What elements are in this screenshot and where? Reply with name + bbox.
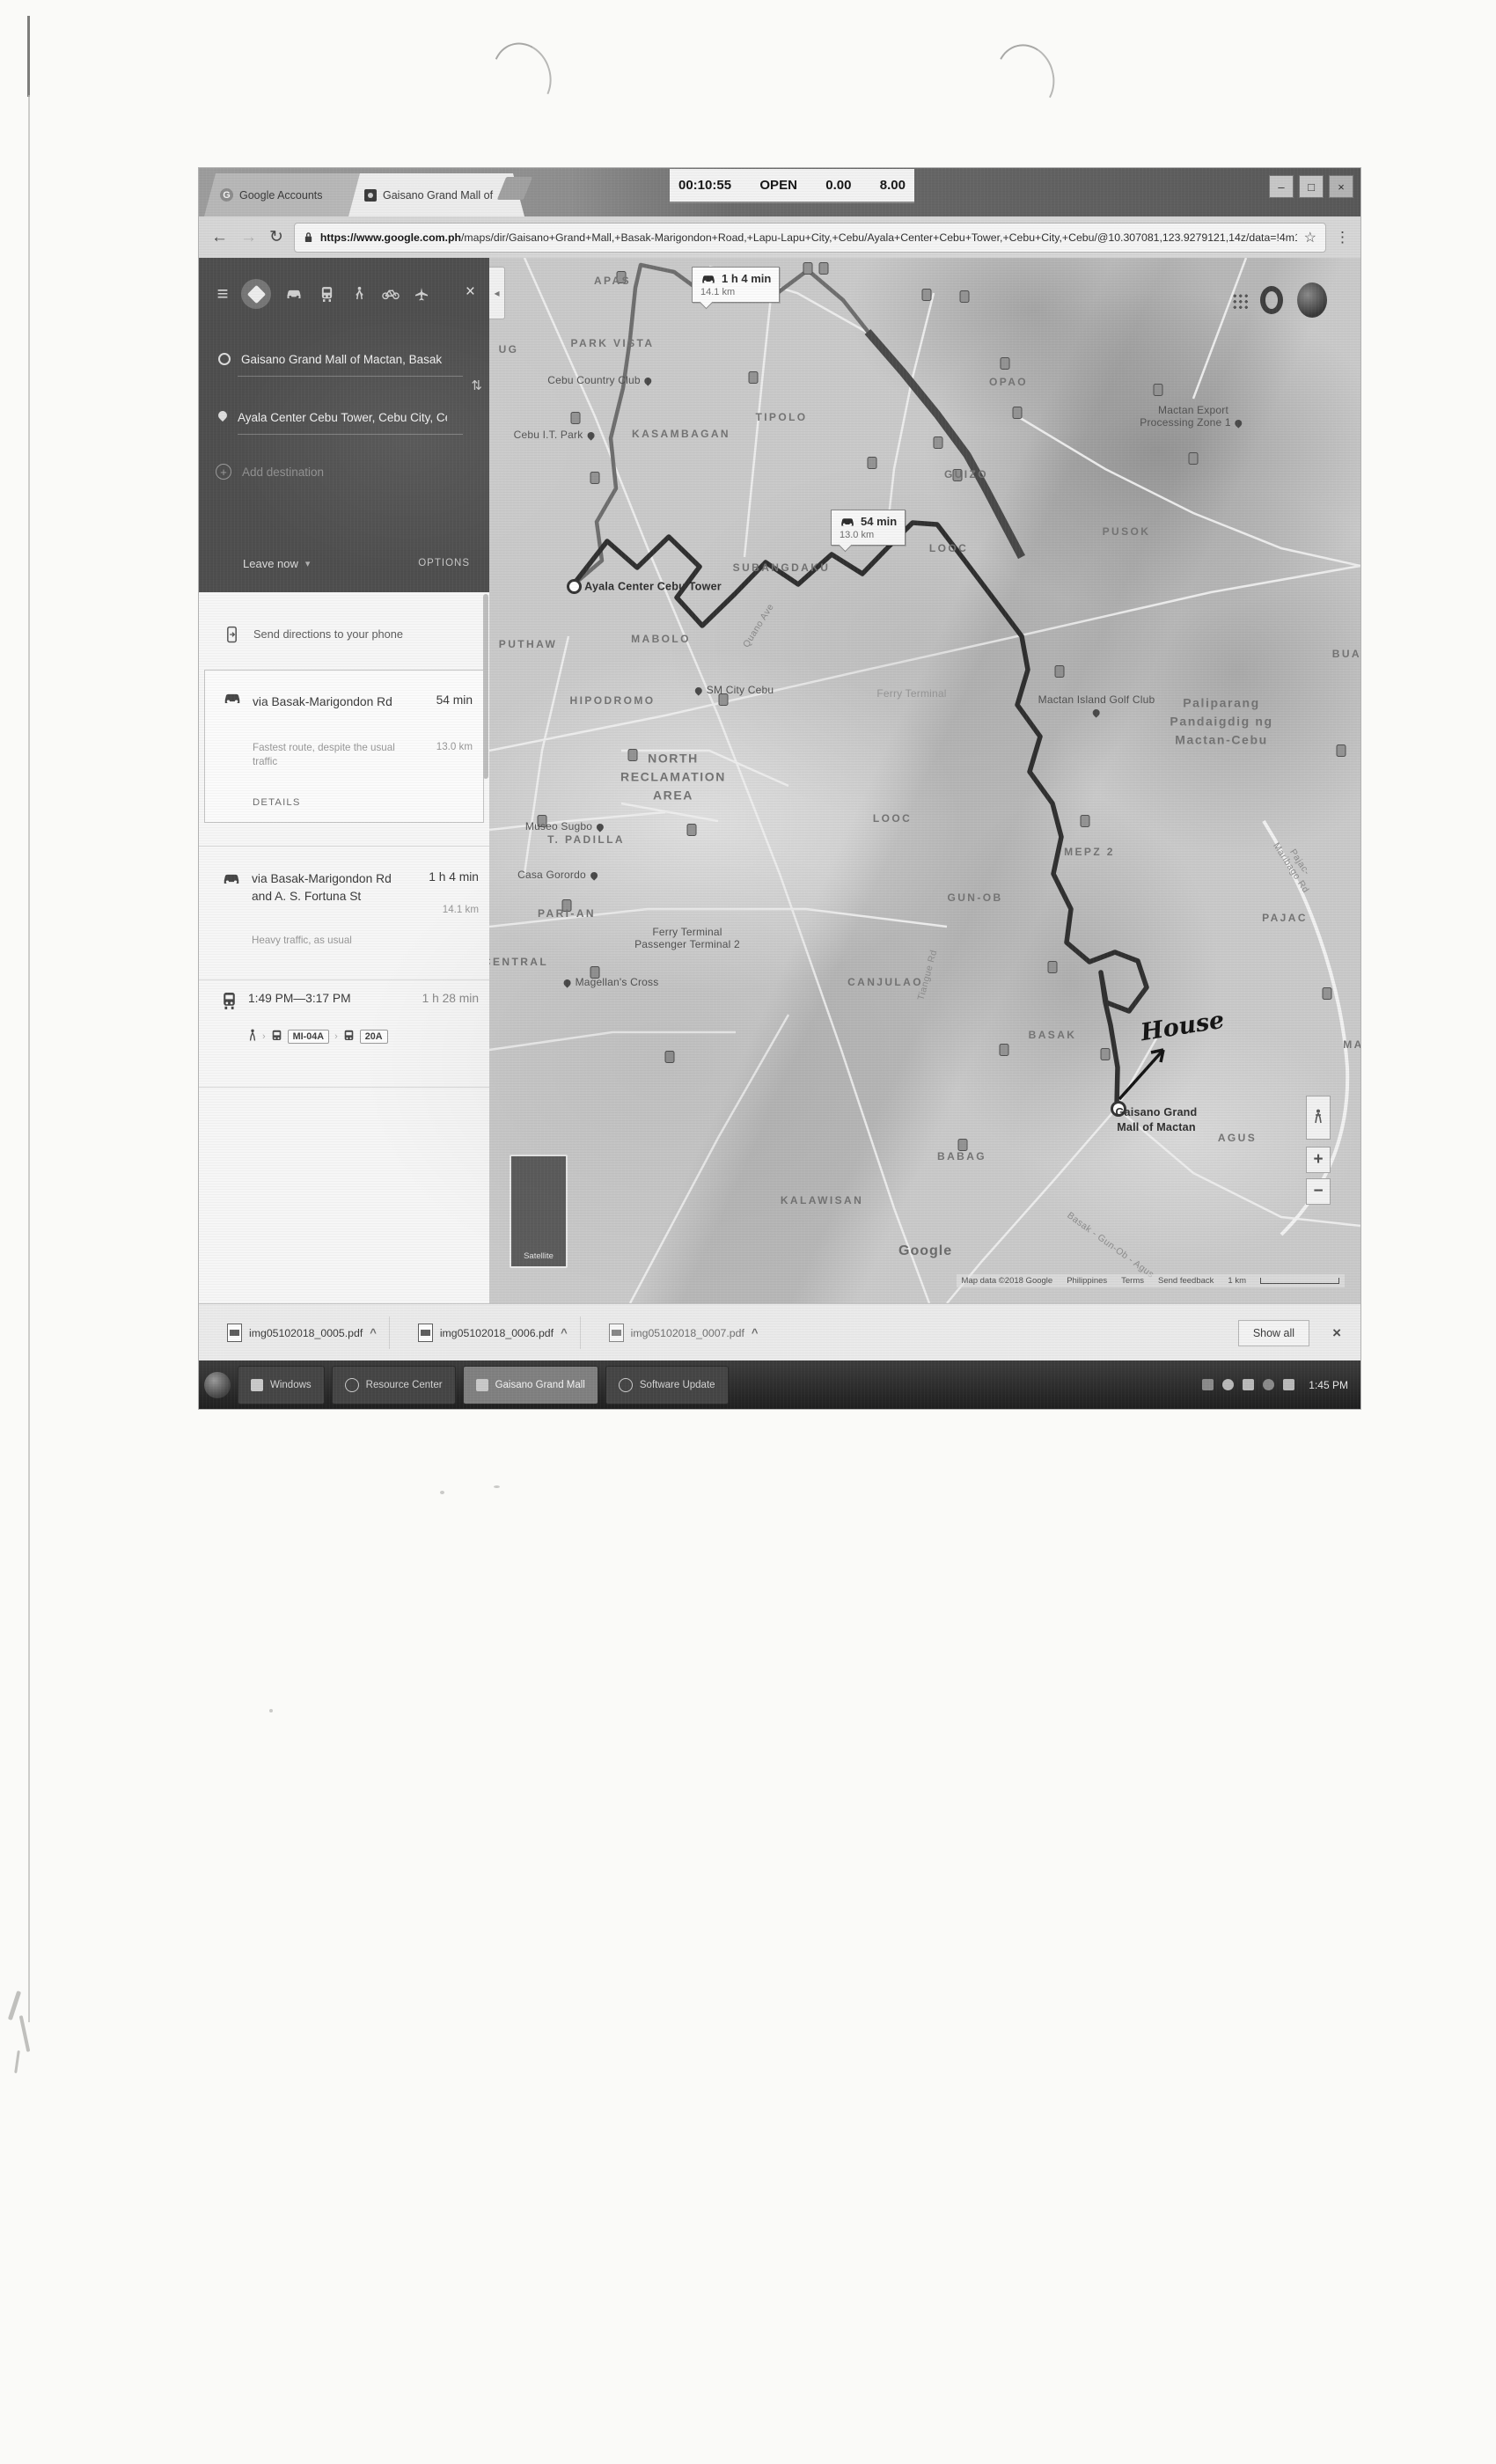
sidebar-scrollbar[interactable]: [483, 594, 488, 779]
car-icon: [700, 274, 716, 284]
scan-edge-line: [28, 95, 30, 2022]
close-window-button[interactable]: ×: [1329, 175, 1353, 198]
map-label: MABOLO: [631, 633, 691, 645]
software-update-icon: [619, 1378, 633, 1392]
url-input[interactable]: https://www.google.com.ph/maps/dir/Gaisa…: [294, 223, 1326, 253]
pen-arc-mark: [484, 35, 561, 119]
map-label: KALAWISAN: [781, 1194, 863, 1206]
maximize-button[interactable]: □: [1299, 175, 1324, 198]
route-via: via Basak-Marigondon Rd: [253, 693, 399, 711]
taskbar-item-label: Gaisano Grand Mall: [495, 1380, 585, 1390]
map-label: Ferry Terminal: [876, 687, 946, 700]
transit-stop-icon: [571, 412, 581, 424]
timer-status: OPEN: [759, 178, 797, 193]
car-icon: [223, 692, 242, 705]
bubble-duration: 54 min: [861, 515, 897, 528]
collapse-icon: ◂: [494, 287, 499, 299]
destination-value: Ayala Center Cebu Tower, Cebu City, Ce: [238, 411, 447, 424]
route-bubble-alternative[interactable]: 1 h 4 min 14.1 km: [692, 267, 780, 303]
transit-stop-icon: [803, 262, 813, 275]
region-label: Philippines: [1067, 1276, 1107, 1286]
feedback-link[interactable]: Send feedback: [1158, 1276, 1214, 1286]
map-label: Cebu I.T. Park: [514, 429, 599, 441]
transit-stop-icon: [868, 457, 877, 469]
add-destination-placeholder: Add destination: [242, 466, 451, 479]
terms-link[interactable]: Terms: [1121, 1276, 1144, 1286]
pegman-icon: [1313, 1108, 1324, 1127]
download-filename: img05102018_0007.pdf: [631, 1327, 744, 1339]
transit-stop-icon: [1055, 665, 1065, 678]
map-label: PAJAC: [1262, 912, 1308, 924]
map-label: T. PADILLA: [547, 833, 625, 846]
map-label: PARK VISTA: [571, 337, 655, 349]
download-filename: img05102018_0006.pdf: [440, 1327, 554, 1339]
show-all-downloads-button[interactable]: Show all: [1238, 1320, 1309, 1346]
map-label: LOOC: [929, 542, 968, 554]
system-tray: 1:45 PM: [1202, 1379, 1348, 1391]
cafe-timer-overlay: 00:10:55 OPEN 0.00 8.00: [670, 169, 914, 203]
caret-up-icon[interactable]: ^: [370, 1326, 377, 1339]
destination-field[interactable]: Ayala Center Cebu Tower, Cebu City, Ce: [199, 402, 489, 432]
scan-speck: [269, 1709, 273, 1712]
map-pin-icon: [595, 822, 605, 832]
transit-stop-icon: [1081, 815, 1090, 827]
mode-cycling[interactable]: [379, 282, 402, 305]
map-label: CENTRAL: [489, 956, 548, 968]
download-filename: img05102018_0005.pdf: [249, 1327, 363, 1339]
maps-favicon-icon: [364, 189, 377, 202]
bike-icon: [382, 288, 400, 300]
car-icon: [285, 288, 303, 300]
route-option-1[interactable]: via Basak-Marigondon Rd 54 min Fastest r…: [204, 670, 484, 823]
lock-icon: [304, 231, 313, 244]
map-label: PARI-AN: [538, 907, 596, 920]
pegman-streetview-control[interactable]: [1306, 1096, 1331, 1140]
route-distance: 14.1 km: [443, 904, 479, 915]
map-label: HIPODROMO: [570, 694, 656, 707]
transit-stop-icon: [687, 824, 697, 836]
map-label: AGUS: [1218, 1132, 1257, 1144]
browser-icon: [476, 1379, 488, 1391]
destination-marker[interactable]: [567, 579, 582, 594]
map-label: PUSOK: [1103, 525, 1151, 538]
scale-label: 1 km: [1228, 1276, 1246, 1286]
map-label: MEPZ 2: [1064, 846, 1115, 858]
back-icon[interactable]: ←: [211, 228, 228, 247]
zoom-in-button[interactable]: +: [1306, 1147, 1331, 1173]
bus-icon: [343, 1030, 355, 1044]
mode-transit[interactable]: [315, 282, 338, 305]
origin-field[interactable]: Gaisano Grand Mall of Mactan, Basak: [199, 344, 489, 374]
transit-route-chip: MI-04A: [288, 1030, 329, 1044]
map-label: CANJULAO: [847, 976, 923, 988]
scan-smudge: [14, 2050, 20, 2073]
directions-panel: ≡ ×: [199, 258, 489, 592]
tray-icon[interactable]: [1202, 1379, 1214, 1390]
add-destination-field[interactable]: + Add destination: [199, 457, 489, 487]
transit-stop-icon: [1189, 452, 1199, 465]
map-label: Paliparang Pandaigdig ng Mactan-Cebu: [1170, 694, 1272, 750]
satellite-toggle-thumbnail[interactable]: Satellite: [510, 1155, 568, 1268]
google-apps-grid-icon[interactable]: [1232, 293, 1248, 309]
transit-stop-icon: [922, 289, 932, 301]
map-attribution: Map data ©2018 Google Philippines Terms …: [957, 1274, 1345, 1287]
chevron-right-icon: ›: [262, 1031, 266, 1042]
transit-route-chip: 20A: [360, 1030, 388, 1044]
transit-stop-icon: [1323, 987, 1332, 1000]
directions-icon: [246, 284, 265, 303]
flight-icon: [414, 287, 429, 301]
address-bar: ← → ↻ https://www.google.com.ph/maps/dir…: [199, 216, 1360, 259]
notification-ring-icon[interactable]: [1260, 286, 1283, 314]
map-label: APAS: [594, 275, 631, 287]
taskbar-item-resource-center[interactable]: Resource Center: [332, 1366, 456, 1404]
timer-time: 00:10:55: [678, 178, 731, 193]
chevron-down-icon: ▾: [305, 558, 311, 569]
taskbar-clock: 1:45 PM: [1309, 1379, 1348, 1391]
mode-driving[interactable]: [282, 282, 305, 305]
downloads-bar: img05102018_0005.pdf ^ img05102018_0006.…: [199, 1303, 1360, 1361]
swap-locations-icon[interactable]: ⇅: [471, 378, 482, 393]
route-duration: 54 min: [436, 693, 473, 707]
route-duration: 1 h 4 min: [429, 870, 479, 884]
caret-up-icon[interactable]: ^: [561, 1326, 568, 1339]
minimize-button[interactable]: –: [1269, 175, 1294, 198]
browser-window: G Google Accounts × Gaisano Grand Mall o…: [198, 167, 1361, 1410]
transit-stop-icon: [749, 371, 759, 384]
route-results: Send directions to your phone via Basak-…: [199, 592, 489, 1303]
map-data-credit: Map data ©2018 Google: [962, 1276, 1053, 1286]
scan-edge-line: [27, 16, 30, 97]
taskbar-item-software-update[interactable]: Software Update: [605, 1366, 729, 1404]
map-label: BUAYA: [1332, 648, 1360, 660]
send-to-phone-label: Send directions to your phone: [253, 627, 403, 641]
map-label: GUN-OB: [947, 891, 1002, 904]
scale-bar: [1260, 1278, 1339, 1284]
leave-now-dropdown[interactable]: Leave now: [243, 557, 298, 570]
window-controls: – □ ×: [1269, 175, 1353, 198]
map-label: SUBANGDAKU: [733, 561, 831, 574]
map-label: KASAMBAGAN: [632, 428, 730, 440]
google-logo: Google: [898, 1243, 952, 1259]
map-label: GUIZO: [944, 468, 988, 480]
start-button[interactable]: [204, 1372, 231, 1398]
transit-stop-icon: [665, 1051, 675, 1063]
zoom-out-button[interactable]: −: [1306, 1178, 1331, 1205]
download-item[interactable]: img05102018_0007.pdf ^: [602, 1316, 771, 1349]
taskbar-item-gaisano-active[interactable]: Gaisano Grand Mall: [463, 1366, 598, 1404]
map-label: NORTH RECLAMATION AREA: [620, 750, 726, 805]
collapse-panel-button[interactable]: ◂: [489, 267, 505, 319]
taskbar-item-windows[interactable]: Windows: [238, 1366, 325, 1404]
route-option-2[interactable]: via Basak-Marigondon Rd and A. S. Fortun…: [199, 853, 489, 972]
taskbar-item-label: Windows: [270, 1380, 312, 1390]
transit-stop-icon: [958, 1139, 968, 1151]
origin-marker-label: Gaisano Grand Mall of Mactan: [1116, 1105, 1198, 1135]
add-destination-icon: +: [216, 464, 231, 480]
scan-speck: [494, 1485, 500, 1488]
transit-stop-icon: [1013, 407, 1023, 419]
satellite-label: Satellite: [524, 1251, 554, 1261]
mode-flight[interactable]: [410, 282, 433, 305]
mode-directions-selected[interactable]: [241, 279, 271, 309]
transit-stop-icon: [1000, 1044, 1009, 1056]
destination-marker-label: Ayala Center Cebu Tower: [584, 580, 722, 595]
map-label: Cebu Country Club: [547, 374, 656, 386]
route-distance: 13.0 km: [436, 741, 473, 752]
browser-menu-icon[interactable]: ⋮: [1335, 229, 1350, 246]
transit-stop-icon: [960, 290, 970, 303]
pdf-icon: [227, 1324, 242, 1342]
mode-walking[interactable]: [348, 282, 370, 305]
transit-stop-icon: [819, 262, 829, 275]
bubble-distance: 13.0 km: [840, 530, 897, 540]
pen-arc-mark: [989, 38, 1062, 119]
map-label: TIPOLO: [755, 411, 807, 423]
walk-icon: [248, 1029, 257, 1044]
scanned-page: G Google Accounts × Gaisano Grand Mall o…: [0, 0, 1496, 2464]
taskbar-item-label: Software Update: [640, 1380, 715, 1390]
map-label: LOOC: [873, 812, 912, 825]
tab-label: Google Accounts: [239, 189, 344, 202]
map-label: Mactan Export Processing Zone 1: [1140, 404, 1246, 429]
map-pin-icon: [586, 430, 596, 440]
google-favicon-icon: G: [220, 188, 233, 202]
route-alternative[interactable]: [573, 265, 869, 585]
pdf-icon: [418, 1324, 433, 1342]
route-details-link[interactable]: DETAILS: [253, 797, 301, 808]
tray-icon[interactable]: [1222, 1379, 1234, 1390]
map-label: Casa Gorordo: [517, 869, 602, 881]
map-pin-icon: [1091, 708, 1101, 717]
scan-speck: [440, 1491, 444, 1494]
transit-time-range: 1:49 PM—3:17 PM: [248, 992, 351, 1005]
route-note: Heavy traffic, as usual: [252, 934, 400, 948]
tray-icon[interactable]: [1283, 1379, 1294, 1390]
transit-option[interactable]: 1:49 PM—3:17 PM 1 h 28 min › MI-04A › 20…: [199, 990, 489, 1087]
bookmark-star-icon[interactable]: ☆: [1304, 229, 1316, 246]
map-label: Magellan's Cross: [560, 976, 659, 988]
map-label: BABAG: [937, 1150, 986, 1162]
tab-strip: G Google Accounts × Gaisano Grand Mall o…: [199, 168, 1360, 216]
close-downloads-icon[interactable]: ×: [1332, 1324, 1341, 1342]
timer-value-a: 0.00: [825, 178, 851, 193]
tab-label: Gaisano Grand Mall of M: [383, 189, 495, 202]
options-button[interactable]: OPTIONS: [418, 558, 470, 568]
close-directions-icon[interactable]: ×: [466, 282, 475, 302]
taskbar-item-label: Resource Center: [366, 1380, 443, 1390]
origin-value: Gaisano Grand Mall of Mactan, Basak: [241, 353, 451, 366]
map-pin-icon: [693, 686, 703, 695]
map-canvas[interactable]: UGAPASPARK VISTACebu Country ClubCebu I.…: [489, 258, 1360, 1303]
map-label: SM City Cebu: [691, 684, 774, 696]
send-to-phone-row[interactable]: Send directions to your phone: [199, 624, 489, 650]
train-icon: [222, 992, 237, 1010]
map-pin-icon: [1234, 418, 1243, 428]
route-note: Fastest route, despite the usual traffic: [253, 741, 400, 769]
map-pin-icon: [643, 376, 653, 385]
forward-icon[interactable]: →: [240, 228, 257, 247]
map-label: Ferry Terminal Passenger Terminal 2: [634, 926, 740, 950]
map-pin-icon: [562, 978, 572, 987]
tab-google-accounts[interactable]: G Google Accounts ×: [204, 173, 373, 216]
car-icon: [840, 517, 855, 527]
transit-legs: › MI-04A › 20A: [248, 1029, 388, 1044]
route-via: via Basak-Marigondon Rd and A. S. Fortun…: [252, 870, 396, 906]
hamburger-icon[interactable]: ≡: [211, 282, 234, 305]
download-item[interactable]: img05102018_0006.pdf ^: [411, 1316, 581, 1349]
resource-center-icon: [345, 1378, 359, 1392]
window-icon: [251, 1379, 263, 1391]
url-text: https://www.google.com.ph/maps/dir/Gaisa…: [320, 231, 1297, 244]
destination-pin-icon: [218, 411, 227, 423]
route-bubble-main[interactable]: 54 min 13.0 km: [831, 510, 906, 546]
transit-stop-icon: [1154, 384, 1163, 396]
transit-stop-icon: [590, 472, 600, 484]
transit-stop-icon: [1048, 961, 1058, 973]
send-to-phone-icon: [225, 626, 238, 643]
bubble-duration: 1 h 4 min: [722, 272, 771, 285]
map-label: Mactan Island Golf Club: [1038, 693, 1155, 716]
map-label: OPAO: [989, 376, 1028, 388]
tray-icon[interactable]: [1243, 1379, 1254, 1390]
bubble-distance: 14.1 km: [700, 287, 771, 297]
map-label: Museo Sugbo: [525, 820, 608, 832]
account-avatar[interactable]: [1297, 282, 1327, 318]
chevron-right-icon: ›: [334, 1031, 338, 1042]
transit-stop-icon: [1001, 357, 1010, 370]
bus-icon: [271, 1030, 282, 1044]
map-label: MA: [1343, 1038, 1360, 1051]
map-label: BASAK: [1029, 1029, 1077, 1041]
origin-dot-icon: [218, 353, 231, 365]
transit-stop-icon: [1337, 744, 1346, 757]
map-pin-icon: [589, 870, 598, 880]
travel-mode-row: ≡: [199, 277, 489, 316]
maps-page: ≡ ×: [199, 258, 1360, 1303]
caret-up-icon[interactable]: ^: [752, 1326, 759, 1339]
departure-options-row: Leave now ▾ OPTIONS: [199, 550, 489, 576]
taskbar: Windows Resource Center Gaisano Grand Ma…: [199, 1360, 1360, 1409]
transit-duration: 1 h 28 min: [422, 992, 479, 1005]
timer-value-b: 8.00: [880, 178, 906, 193]
reload-icon[interactable]: ↻: [269, 227, 283, 247]
train-icon: [320, 286, 334, 303]
car-icon: [222, 872, 241, 885]
tray-icon[interactable]: [1263, 1379, 1274, 1390]
download-item[interactable]: img05102018_0005.pdf ^: [220, 1316, 390, 1349]
directions-sidebar: ≡ ×: [199, 258, 489, 1303]
map-label: UG: [499, 343, 519, 356]
transit-stop-icon: [934, 436, 943, 449]
walk-icon: [355, 286, 364, 303]
pdf-icon: [609, 1324, 624, 1342]
map-label: PUTHAW: [499, 638, 557, 650]
transit-stop-icon: [1101, 1048, 1111, 1060]
